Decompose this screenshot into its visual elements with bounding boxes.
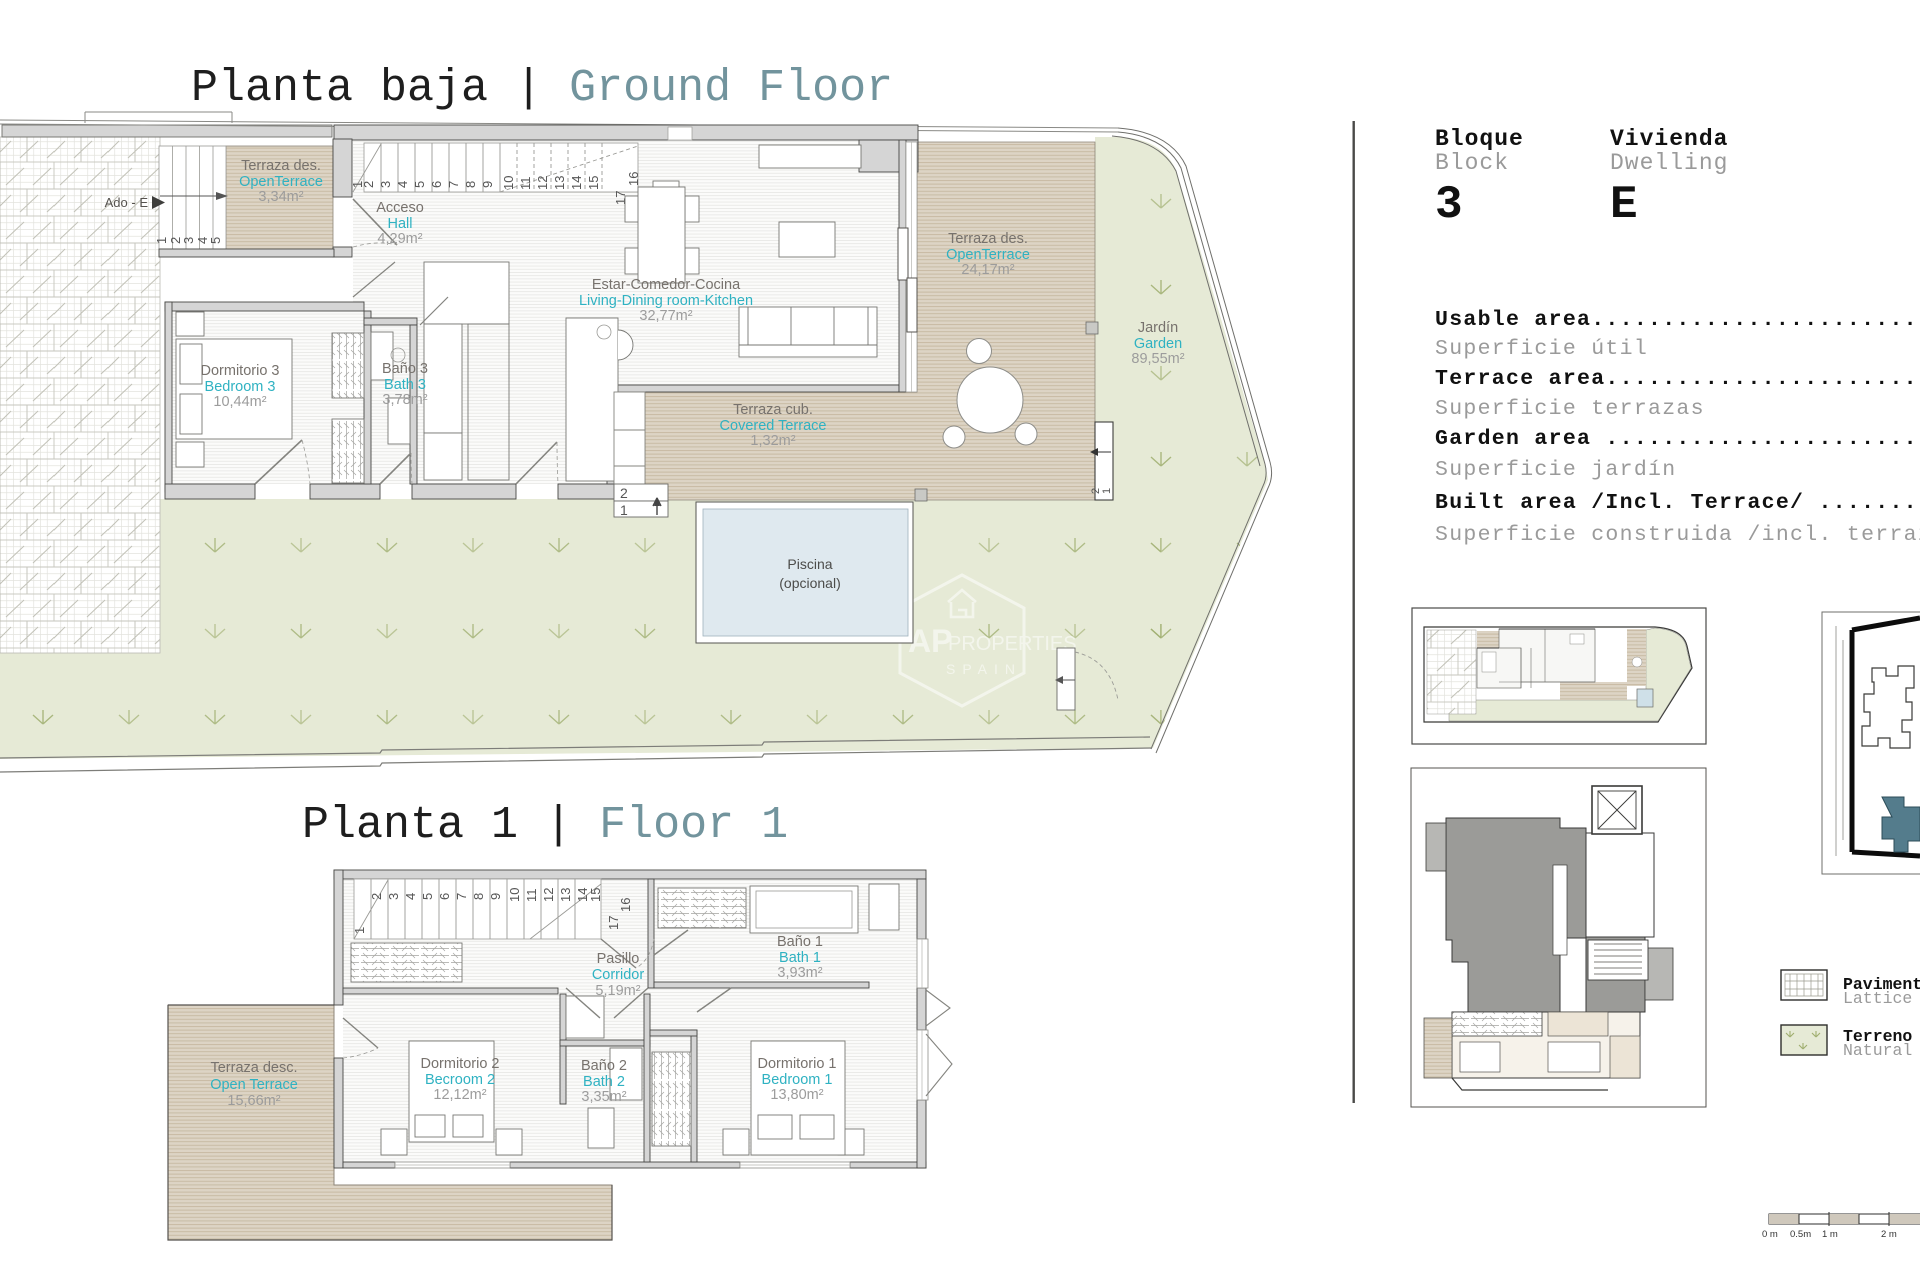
svg-text:16: 16 [626, 172, 641, 186]
svg-text:Lattice: Lattice [1843, 989, 1912, 1008]
svg-text:Terrace area..................: Terrace area............................ [1435, 367, 1920, 391]
svg-text:16: 16 [618, 898, 633, 912]
svg-text:14: 14 [569, 176, 584, 190]
svg-text:32,77m²: 32,77m² [639, 308, 692, 324]
svg-text:Baño 3: Baño 3 [382, 361, 428, 377]
svg-text:Terraza desc.: Terraza desc. [210, 1060, 297, 1076]
svg-text:2: 2 [361, 181, 376, 188]
svg-text:8: 8 [463, 181, 478, 188]
svg-text:3,78m²: 3,78m² [382, 392, 427, 408]
svg-text:Superficie terrazas: Superficie terrazas [1435, 397, 1705, 421]
svg-text:15,66m²: 15,66m² [227, 1093, 280, 1109]
svg-text:Terraza cub.: Terraza cub. [733, 402, 813, 418]
svg-text:11: 11 [518, 177, 533, 191]
svg-text:3: 3 [386, 893, 401, 900]
svg-text:0.5m: 0.5m [1790, 1229, 1811, 1240]
svg-text:Superficie jardín: Superficie jardín [1435, 458, 1676, 482]
svg-text:24,17m²: 24,17m² [961, 262, 1014, 278]
svg-text:Bath 2: Bath 2 [583, 1074, 625, 1090]
svg-text:Hall: Hall [388, 216, 413, 232]
svg-text:E: E [1610, 179, 1638, 231]
svg-text:Terraza des.: Terraza des. [241, 158, 321, 174]
svg-text:Open Terrace: Open Terrace [210, 1077, 298, 1093]
svg-text:15: 15 [588, 888, 603, 902]
svg-text:5,19m²: 5,19m² [595, 983, 640, 999]
svg-text:OpenTerrace: OpenTerrace [239, 174, 323, 190]
svg-text:4: 4 [395, 181, 410, 188]
svg-text:12: 12 [535, 176, 550, 190]
svg-text:3: 3 [378, 181, 393, 188]
svg-text:2 m: 2 m [1881, 1229, 1897, 1240]
svg-text:13: 13 [558, 888, 573, 902]
svg-text:Usable area...................: Usable area............................. [1435, 308, 1920, 332]
svg-text:Dormitorio 2: Dormitorio 2 [421, 1056, 500, 1072]
svg-text:Baño 1: Baño 1 [777, 934, 823, 950]
svg-text:1 m: 1 m [1822, 1229, 1838, 1240]
svg-text:10: 10 [501, 176, 516, 190]
svg-text:Superficie útil: Superficie útil [1435, 337, 1648, 361]
svg-text:10: 10 [507, 888, 522, 902]
svg-text:Block: Block [1435, 150, 1509, 176]
svg-text:Covered Terrace: Covered Terrace [720, 418, 827, 434]
svg-text:3: 3 [1435, 179, 1463, 231]
svg-text:Built area /Incl. Terrace/ ...: Built area /Incl. Terrace/ ......... [1435, 491, 1920, 515]
svg-text:Dormitorio 3: Dormitorio 3 [201, 363, 280, 379]
svg-text:AP: AP [908, 623, 952, 659]
svg-text:11: 11 [524, 889, 539, 903]
svg-text:Jardín: Jardín [1138, 320, 1178, 336]
svg-text:5: 5 [208, 237, 223, 244]
svg-text:Vivienda: Vivienda [1610, 126, 1728, 152]
svg-text:Bedroom 1: Bedroom 1 [762, 1072, 833, 1088]
svg-text:17: 17 [606, 916, 621, 930]
svg-text:Planta baja | Ground Floor: Planta baja | Ground Floor [191, 63, 893, 114]
svg-text:3,34m²: 3,34m² [258, 189, 303, 205]
svg-text:OpenTerrace: OpenTerrace [946, 247, 1030, 263]
svg-text:Piscina: Piscina [787, 556, 832, 572]
svg-text:7: 7 [446, 181, 461, 188]
svg-text:1: 1 [1101, 488, 1113, 494]
svg-text:12,12m²: 12,12m² [433, 1087, 486, 1103]
svg-text:Bath 3: Bath 3 [384, 377, 426, 393]
svg-text:4: 4 [403, 893, 418, 900]
svg-text:6: 6 [429, 181, 444, 188]
svg-text:Garden area ..................: Garden area ......................... [1435, 427, 1920, 451]
svg-text:1: 1 [154, 237, 169, 244]
svg-text:Estar-Comedor-Cocina: Estar-Comedor-Cocina [592, 277, 741, 293]
svg-text:2: 2 [369, 893, 384, 900]
svg-text:10,44m²: 10,44m² [213, 394, 266, 410]
svg-text:Living-Dining room-Kitchen: Living-Dining room-Kitchen [579, 293, 753, 309]
svg-text:3,35m²: 3,35m² [581, 1089, 626, 1105]
svg-text:7: 7 [454, 893, 469, 900]
svg-text:8: 8 [471, 893, 486, 900]
svg-text:Bloque: Bloque [1435, 126, 1524, 152]
svg-text:Dormitorio 1: Dormitorio 1 [758, 1056, 837, 1072]
svg-text:Corridor: Corridor [592, 967, 645, 983]
svg-text:15: 15 [586, 176, 601, 190]
svg-text:Ado - E: Ado - E [105, 195, 149, 210]
svg-text:Planta 1 | Floor 1: Planta 1 | Floor 1 [302, 800, 788, 851]
svg-text:1: 1 [620, 502, 628, 518]
svg-text:9: 9 [488, 893, 503, 900]
svg-text:0 m: 0 m [1762, 1229, 1778, 1240]
svg-text:5: 5 [412, 181, 427, 188]
svg-text:3: 3 [181, 237, 196, 244]
svg-text:Terraza des.: Terraza des. [948, 231, 1028, 247]
svg-text:Natural: Natural [1843, 1041, 1912, 1060]
svg-text:Dwelling: Dwelling [1610, 150, 1728, 176]
svg-text:Superficie construida /incl. t: Superficie construida /incl. terrazas/ [1435, 523, 1920, 547]
svg-text:5: 5 [420, 893, 435, 900]
svg-text:9: 9 [480, 181, 495, 188]
svg-text:1,32m²: 1,32m² [750, 433, 795, 449]
svg-text:12: 12 [541, 888, 556, 902]
svg-text:Becroom 2: Becroom 2 [425, 1072, 495, 1088]
svg-text:1: 1 [352, 927, 367, 934]
svg-text:Bedroom 3: Bedroom 3 [205, 379, 276, 395]
svg-text:2: 2 [620, 485, 628, 501]
svg-text:6: 6 [437, 893, 452, 900]
svg-text:3,93m²: 3,93m² [777, 965, 822, 981]
svg-text:13: 13 [552, 176, 567, 190]
svg-text:Baño 2: Baño 2 [581, 1058, 627, 1074]
svg-text:Pasillo: Pasillo [597, 951, 640, 967]
svg-text:Bath 1: Bath 1 [779, 950, 821, 966]
svg-text:Garden: Garden [1134, 336, 1182, 352]
svg-text:SPAIN: SPAIN [946, 661, 1022, 677]
svg-text:89,55m²: 89,55m² [1131, 351, 1184, 367]
svg-text:4,29m²: 4,29m² [377, 231, 422, 247]
svg-text:(opcional): (opcional) [779, 575, 840, 591]
svg-text:13,80m²: 13,80m² [770, 1087, 823, 1103]
svg-text:Acceso: Acceso [376, 200, 424, 216]
